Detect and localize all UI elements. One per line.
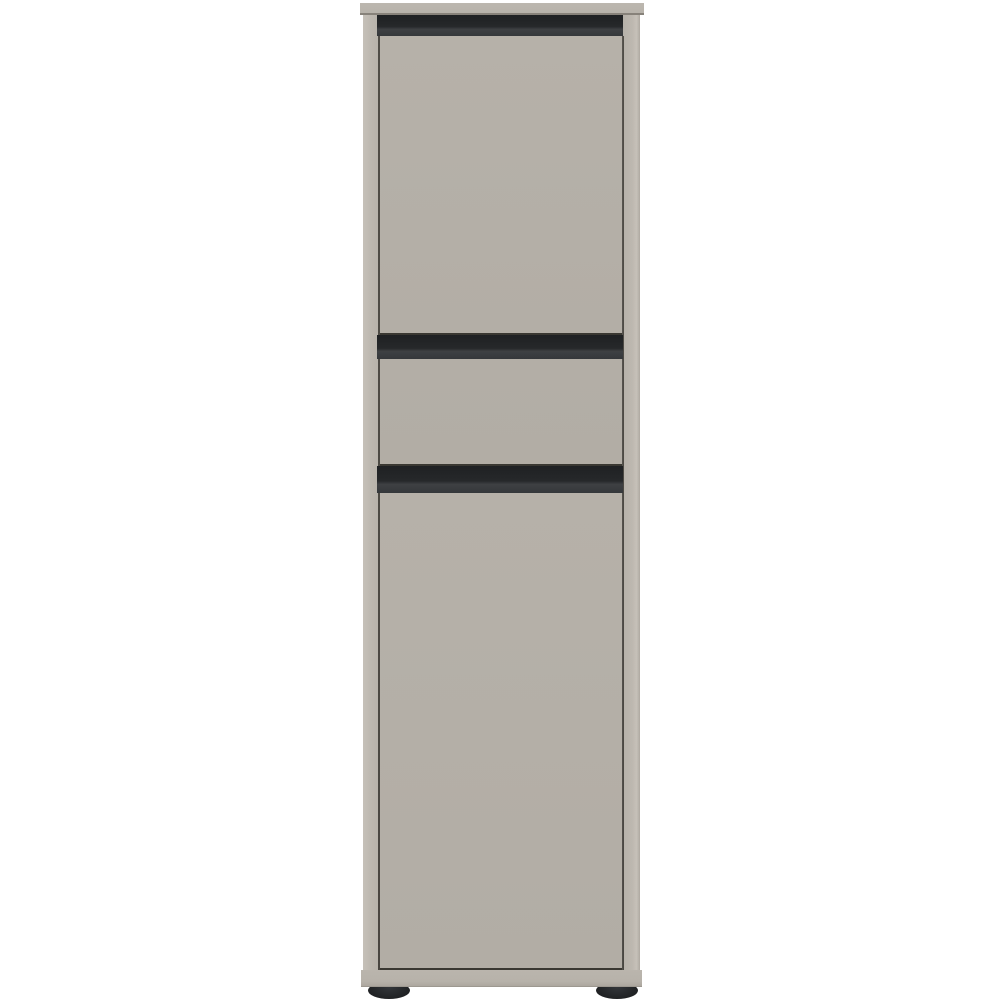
cabinet-middle-handle-recess	[377, 335, 623, 359]
cabinet-right-side-panel	[623, 15, 640, 972]
cabinet-lower-door	[380, 493, 622, 970]
cabinet-drawer-front	[380, 359, 622, 466]
cabinet-lower-handle-recess	[377, 466, 623, 493]
product-photo-cabinet	[0, 0, 1000, 1000]
cabinet-base-plinth	[361, 970, 642, 987]
cabinet-top-handle-recess	[377, 15, 623, 36]
cabinet-top-panel	[360, 3, 644, 15]
cabinet-right-gap-line	[622, 36, 624, 970]
cabinet-upper-door	[380, 36, 622, 335]
